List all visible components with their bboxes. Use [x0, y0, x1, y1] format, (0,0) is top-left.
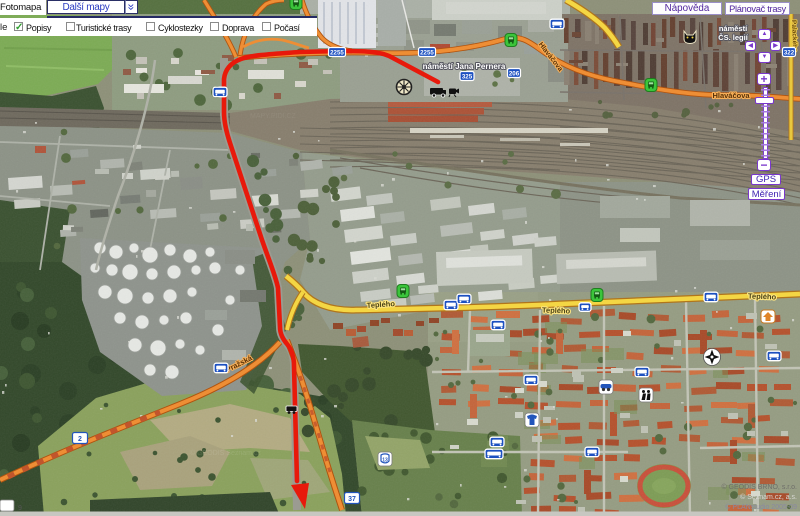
svg-text:© Seznam.cz, a.s.: © Seznam.cz, a.s.: [740, 493, 797, 501]
svg-text:© GEODIS BRNO, s.r.o.: © GEODIS BRNO, s.r.o.: [721, 483, 797, 491]
svg-text:13: 13: [382, 458, 388, 464]
svg-text:náměstí Jana Pernera: náměstí Jana Pernera: [423, 62, 506, 71]
svg-text:2: 2: [78, 436, 82, 443]
svg-text:MAPY.PIDI.CZ: MAPY.PIDI.CZ: [250, 113, 296, 120]
svg-text:Teplého: Teplého: [542, 306, 571, 316]
svg-text:ČS. legií: ČS. legií: [718, 33, 749, 42]
svg-text:325: 325: [462, 73, 473, 80]
svg-text:37: 37: [348, 496, 356, 503]
svg-text:9: 9: [18, 505, 22, 512]
svg-text:© PLANstudio 2005-09: © PLANstudio 2005-09: [725, 503, 797, 511]
svg-text:2255: 2255: [420, 49, 434, 56]
svg-text:322: 322: [784, 49, 795, 56]
svg-text:Teplého: Teplého: [748, 292, 777, 302]
svg-text:Hlaváčova: Hlaváčova: [712, 91, 750, 100]
svg-text:2255: 2255: [330, 49, 344, 56]
svg-text:náměstí: náměstí: [719, 24, 748, 33]
svg-text:206: 206: [509, 70, 520, 77]
svg-text:© GEODIS Seznam.cz: © GEODIS Seznam.cz: [190, 449, 261, 457]
